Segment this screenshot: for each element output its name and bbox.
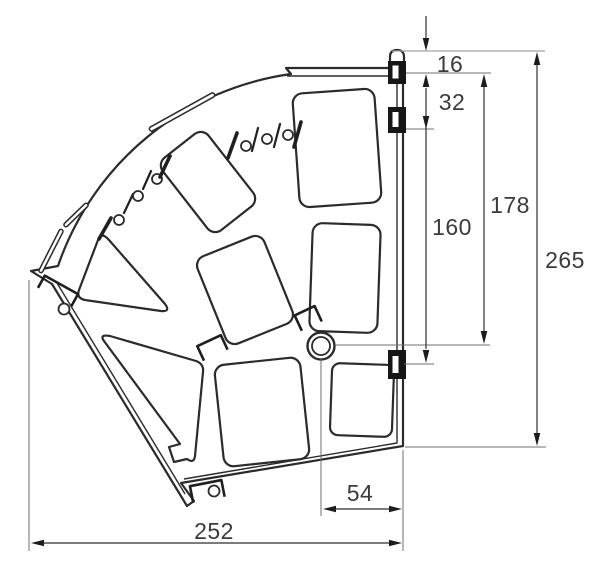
- arrow-down-16: [423, 38, 430, 51]
- pivot: [308, 333, 335, 360]
- cutout-bottom-middle: [214, 357, 310, 467]
- band-hole: [262, 134, 272, 144]
- cutout-top-right: [292, 88, 382, 207]
- band-tick: [143, 171, 151, 189]
- band-tick: [252, 128, 258, 151]
- hinge-slot-3: [393, 356, 399, 373]
- dim-label-54: 54: [347, 480, 374, 506]
- dim-label-252: 252: [194, 518, 234, 544]
- arrow-left-54: [323, 506, 336, 513]
- cutout-triangle-lower: [102, 336, 203, 462]
- arrow-right-252: [389, 540, 402, 547]
- arrow-up-265: [534, 52, 541, 65]
- arrow-down-178: [481, 331, 488, 344]
- band-hole: [241, 141, 251, 151]
- band-tick: [274, 124, 280, 147]
- arrow-left-252: [31, 540, 44, 547]
- technical-drawing-svg: 16 32 160 178 265 54 252: [0, 0, 611, 587]
- band-end-tick: [228, 133, 237, 158]
- clip-hole-left: [59, 304, 70, 315]
- dim-label-16: 16: [437, 51, 464, 77]
- hinge-slot-1: [393, 66, 399, 79]
- band-hole: [114, 215, 124, 225]
- arrow-right-54: [389, 506, 402, 513]
- dim-label-178: 178: [490, 192, 530, 218]
- tick-band-left: [99, 156, 170, 239]
- clip-hole-bottom: [209, 486, 220, 497]
- arrow-up-178: [481, 74, 488, 87]
- dim-label-32: 32: [439, 89, 466, 115]
- hinge-slot-2: [393, 112, 399, 127]
- arrow-down-160: [423, 350, 430, 363]
- pivot-hole-inner: [312, 337, 330, 355]
- rim-slot-long: [149, 92, 216, 132]
- cutout-middle-left: [194, 233, 296, 347]
- cutout-triangle-upper: [78, 236, 167, 312]
- band-hole: [283, 130, 293, 140]
- band-hole: [133, 191, 143, 201]
- cutout-bottom-right: [330, 363, 394, 437]
- cutouts: [78, 88, 394, 467]
- tick-band-right: [228, 122, 301, 158]
- arrow-down-265: [534, 433, 541, 446]
- arrow-down-32: [423, 116, 430, 129]
- drawing-canvas: 16 32 160 178 265 54 252: [0, 0, 611, 587]
- dim-label-160: 160: [432, 214, 472, 240]
- arrow-up-32: [423, 74, 430, 87]
- dim-label-265: 265: [545, 247, 585, 273]
- clip-center-left: [197, 335, 227, 360]
- band-tick: [124, 194, 133, 213]
